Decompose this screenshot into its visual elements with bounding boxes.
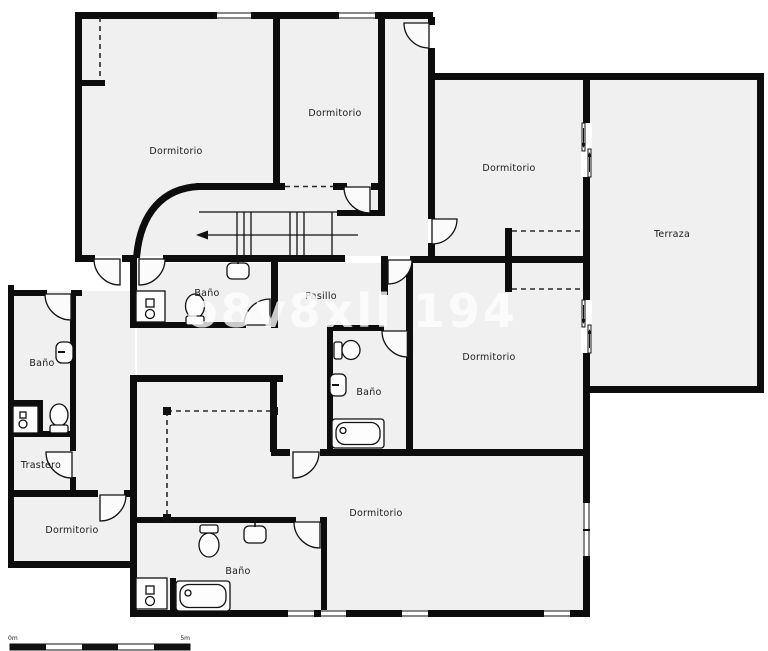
window-icon: [402, 610, 428, 617]
sliding-door-icon: [581, 300, 592, 353]
bathtub-icon: [176, 581, 230, 611]
floorplan-page: Dormitorio Dormitorio Dormitorio Terraza…: [0, 0, 768, 651]
sink-icon: [56, 342, 73, 363]
watermark: o8v8xll 194: [186, 284, 518, 338]
floorplan-drawing: Dormitorio Dormitorio Dormitorio Terraza…: [0, 0, 768, 651]
toilet-icon: [199, 525, 219, 557]
toilet-icon: [334, 341, 360, 360]
window-icon: [583, 503, 590, 529]
window-icon: [583, 531, 590, 556]
room-label-dormitorio: Dormitorio: [462, 352, 515, 363]
room-label-dormitorio: Dormitorio: [149, 146, 202, 157]
room-label-trastero: Trastero: [20, 460, 61, 471]
window-icon: [288, 610, 314, 617]
washbasin-cabinet-icon: [136, 578, 167, 609]
room-label-dormitorio: Dormitorio: [482, 163, 535, 174]
scale-end-label: 5m: [180, 635, 190, 642]
window-icon: [336, 12, 378, 19]
room-label-bano: Baño: [29, 358, 54, 369]
window-icon: [544, 610, 570, 617]
toilet-icon: [50, 404, 68, 433]
door-icon: [94, 259, 120, 285]
scale-bar: 0m 5m: [8, 635, 190, 650]
scale-start-label: 0m: [8, 635, 18, 642]
window-icon: [214, 12, 254, 19]
sink-icon: [330, 374, 346, 396]
room-label-terraza: Terraza: [653, 229, 690, 240]
room-label-dormitorio: Dormitorio: [349, 508, 402, 519]
room-label-bano: Baño: [356, 387, 381, 398]
window-icon: [321, 610, 346, 617]
washbasin-cabinet-icon: [136, 291, 165, 322]
room-label-bano: Baño: [225, 566, 250, 577]
room-label-dormitorio: Dormitorio: [45, 525, 98, 536]
sliding-door-icon: [581, 123, 592, 177]
room-label-dormitorio: Dormitorio: [308, 108, 361, 119]
bathtub-icon: [332, 419, 384, 448]
washbasin-cabinet-icon: [13, 406, 38, 433]
